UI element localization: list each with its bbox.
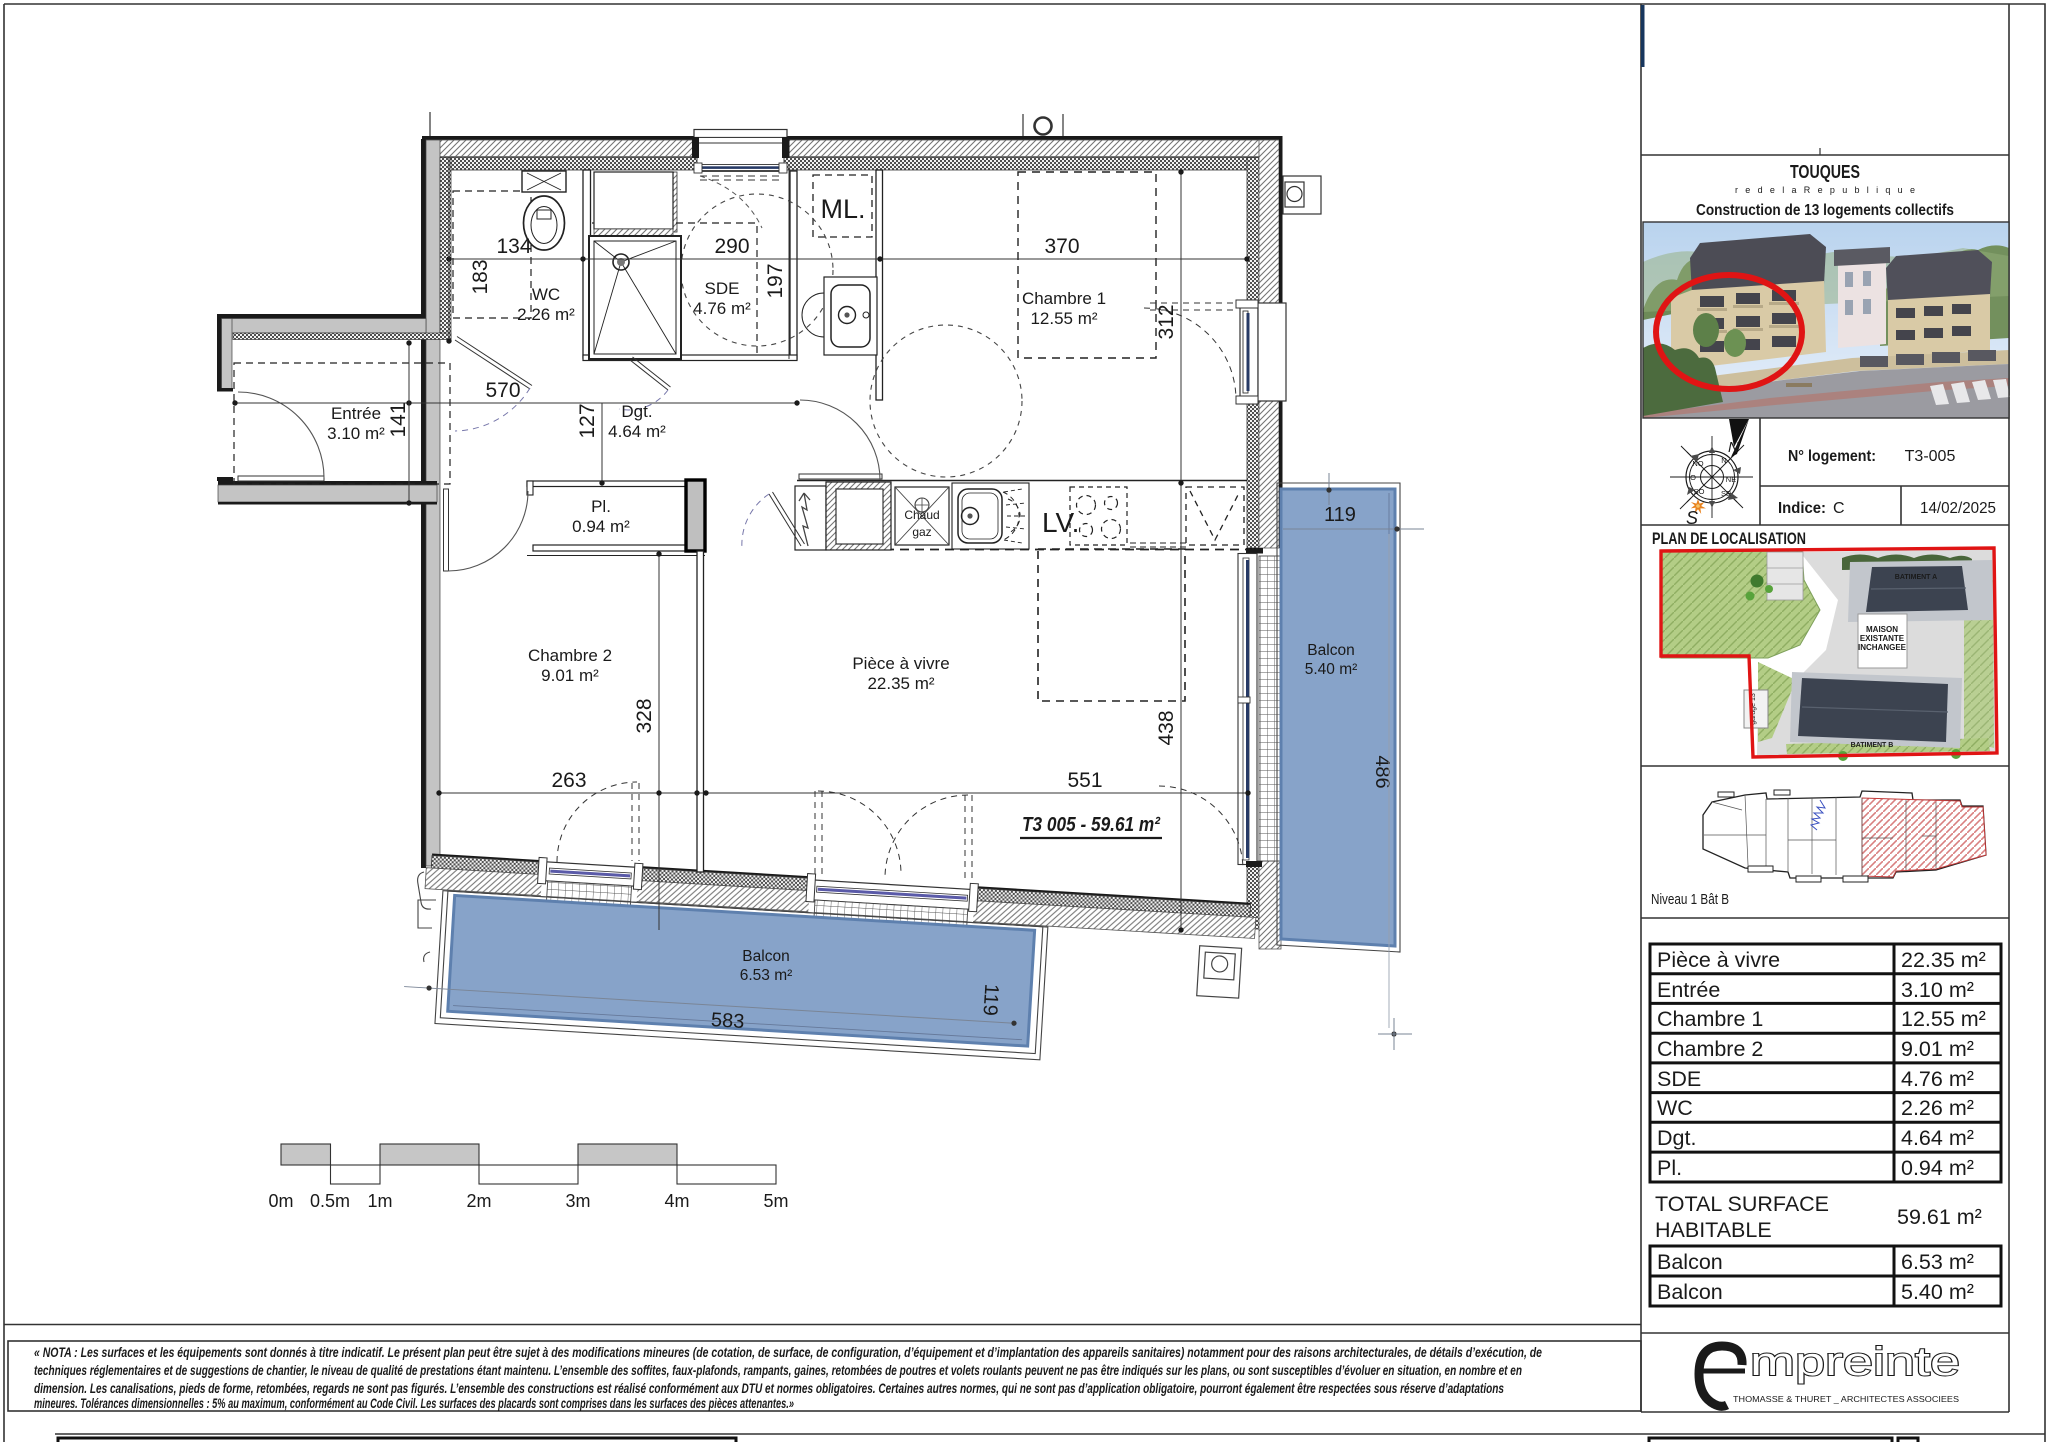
svg-text:4m: 4m: [664, 1191, 689, 1211]
svg-text:290: 290: [714, 235, 749, 258]
svg-text:gaz: gaz: [912, 525, 931, 539]
svg-text:SE: SE: [1721, 489, 1731, 498]
svg-text:Pl.: Pl.: [591, 497, 611, 516]
svg-text:312: 312: [1155, 304, 1178, 339]
svg-text:techniques réglementaires et d: techniques réglementaires et de suggesti…: [34, 1363, 1522, 1378]
svg-text:SDE: SDE: [1657, 1067, 1701, 1091]
svg-text:dimension. Les canalisations,: dimension. Les canalisations, pieds de f…: [34, 1381, 1504, 1396]
svg-text:Chambre 2: Chambre 2: [528, 646, 612, 665]
svg-text:C: C: [1833, 500, 1845, 517]
svg-text:NE: NE: [1726, 475, 1736, 484]
svg-text:Balcon: Balcon: [742, 948, 789, 965]
svg-text:14/02/2025: 14/02/2025: [1920, 500, 1996, 517]
svg-text:6.53 m²: 6.53 m²: [740, 967, 793, 984]
svg-text:Dgt.: Dgt.: [1657, 1126, 1696, 1150]
svg-text:O: O: [1690, 473, 1696, 482]
svg-text:Entrée: Entrée: [1657, 978, 1720, 1002]
svg-text:MAISON: MAISON: [1866, 625, 1898, 634]
svg-text:3m: 3m: [565, 1191, 590, 1211]
svg-text:Chambre 1: Chambre 1: [1657, 1007, 1763, 1031]
svg-text:5m: 5m: [763, 1191, 788, 1211]
svg-text:59.61 m²: 59.61 m²: [1897, 1205, 1982, 1229]
svg-text:570: 570: [485, 379, 520, 402]
svg-text:4.64 m²: 4.64 m²: [608, 422, 666, 441]
svg-text:SO: SO: [1694, 487, 1705, 496]
svg-text:183: 183: [469, 259, 492, 294]
svg-text:Pièce à vivre: Pièce à vivre: [1657, 948, 1780, 972]
svg-text:119: 119: [978, 983, 1002, 1016]
svg-text:12.55 m²: 12.55 m²: [1030, 309, 1097, 328]
svg-text:5.40 m²: 5.40 m²: [1901, 1280, 1974, 1304]
svg-text:mpreinte: mpreinte: [1750, 1340, 1960, 1384]
svg-text:Chambre 1: Chambre 1: [1022, 289, 1106, 308]
svg-text:551: 551: [1067, 769, 1102, 792]
svg-text:Pl.: Pl.: [1657, 1156, 1682, 1180]
svg-text:9.01 m²: 9.01 m²: [541, 666, 599, 685]
svg-text:Entrée: Entrée: [331, 404, 381, 423]
svg-text:3.10 m²: 3.10 m²: [1901, 978, 1974, 1002]
svg-text:119: 119: [1324, 504, 1356, 526]
svg-text:Chambre 2: Chambre 2: [1657, 1037, 1763, 1061]
svg-text:ML.: ML.: [820, 194, 865, 224]
svg-text:Balcon: Balcon: [1657, 1280, 1723, 1304]
svg-text:SDE: SDE: [705, 279, 740, 298]
svg-text:4.76 m²: 4.76 m²: [693, 299, 751, 318]
svg-text:2.26 m²: 2.26 m²: [517, 305, 575, 324]
svg-text:0.94 m²: 0.94 m²: [572, 517, 630, 536]
svg-text:INCHANGEE: INCHANGEE: [1858, 643, 1907, 652]
svg-text:S: S: [1686, 508, 1698, 528]
svg-text:486: 486: [1371, 755, 1393, 788]
svg-text:N° logement:: N° logement:: [1788, 448, 1876, 465]
svg-text:2m: 2m: [466, 1191, 491, 1211]
svg-text:WC: WC: [532, 285, 560, 304]
svg-text:328: 328: [633, 698, 656, 733]
svg-text:PLAN DE LOCALISATION: PLAN DE LOCALISATION: [1652, 530, 1806, 548]
svg-text:438: 438: [1155, 710, 1178, 745]
svg-text:THOMASSE & THURET _ ARCHITECTE: THOMASSE & THURET _ ARCHITECTES ASSOCIEE…: [1733, 1395, 1959, 1404]
svg-text:WC: WC: [1657, 1096, 1693, 1120]
svg-text:6.53 m²: 6.53 m²: [1901, 1250, 1974, 1274]
svg-text:EXISTANTE: EXISTANTE: [1860, 634, 1905, 643]
svg-text:Dgt.: Dgt.: [621, 402, 652, 421]
svg-text:TOUQUES: TOUQUES: [1790, 162, 1860, 182]
svg-text:263: 263: [551, 769, 586, 792]
svg-text:Balcon: Balcon: [1657, 1250, 1723, 1274]
svg-text:TOTAL SURFACE: TOTAL SURFACE: [1655, 1192, 1829, 1216]
svg-text:T3-005: T3-005: [1905, 448, 1956, 465]
svg-text:LV.: LV.: [1042, 507, 1079, 538]
svg-text:BATIMENT B: BATIMENT B: [1851, 742, 1894, 749]
svg-text:BATIMENT A: BATIMENT A: [1895, 574, 1937, 581]
svg-text:« NOTA : Les surfaces et les é: « NOTA : Les surfaces et les équipements…: [34, 1345, 1542, 1360]
svg-text:Indice:: Indice:: [1778, 500, 1826, 517]
svg-text:2.26 m²: 2.26 m²: [1901, 1096, 1974, 1120]
svg-text:N: N: [1728, 439, 1739, 456]
svg-text:1m: 1m: [367, 1191, 392, 1211]
svg-text:22.35 m²: 22.35 m²: [867, 674, 934, 693]
svg-text:141: 141: [387, 402, 410, 437]
svg-text:9.01 m²: 9.01 m²: [1901, 1037, 1974, 1061]
svg-text:4.76 m²: 4.76 m²: [1901, 1067, 1974, 1091]
svg-text:12.55 m²: 12.55 m²: [1901, 1007, 1986, 1031]
svg-text:127: 127: [576, 403, 599, 438]
svg-text:3.10 m²: 3.10 m²: [327, 424, 385, 443]
svg-text:Chaud: Chaud: [904, 508, 939, 522]
svg-text:N: N: [1721, 456, 1726, 465]
svg-text:0m: 0m: [268, 1191, 293, 1211]
svg-text:5.40 m²: 5.40 m²: [1305, 661, 1358, 678]
svg-text:Pièce à vivre: Pièce à vivre: [852, 654, 949, 673]
svg-text:mineures. Tolérances dimension: mineures. Tolérances dimensionnelles : 5…: [34, 1396, 794, 1411]
svg-text:583: 583: [710, 1009, 745, 1033]
svg-text:r e d e l a R e p u: r e d e l a R e p u b l i q u e: [1735, 185, 1915, 195]
svg-text:22.35 m²: 22.35 m²: [1901, 948, 1986, 972]
svg-text:HABITABLE: HABITABLE: [1655, 1218, 1772, 1242]
svg-text:4.64 m²: 4.64 m²: [1901, 1126, 1974, 1150]
svg-text:T3 005 - 59.61 m²: T3 005 - 59.61 m²: [1022, 814, 1161, 836]
svg-text:370: 370: [1044, 235, 1079, 258]
svg-text:Balcon: Balcon: [1307, 642, 1354, 659]
svg-text:197: 197: [764, 263, 787, 298]
svg-text:0.5m: 0.5m: [310, 1191, 350, 1211]
svg-text:Construction de 13 logements c: Construction de 13 logements collectifs: [1696, 202, 1954, 219]
svg-text:0.94 m²: 0.94 m²: [1901, 1156, 1974, 1180]
svg-text:134: 134: [496, 235, 531, 258]
svg-text:NO: NO: [1692, 459, 1703, 468]
svg-text:Niveau 1 Bât B: Niveau 1 Bât B: [1651, 891, 1729, 908]
